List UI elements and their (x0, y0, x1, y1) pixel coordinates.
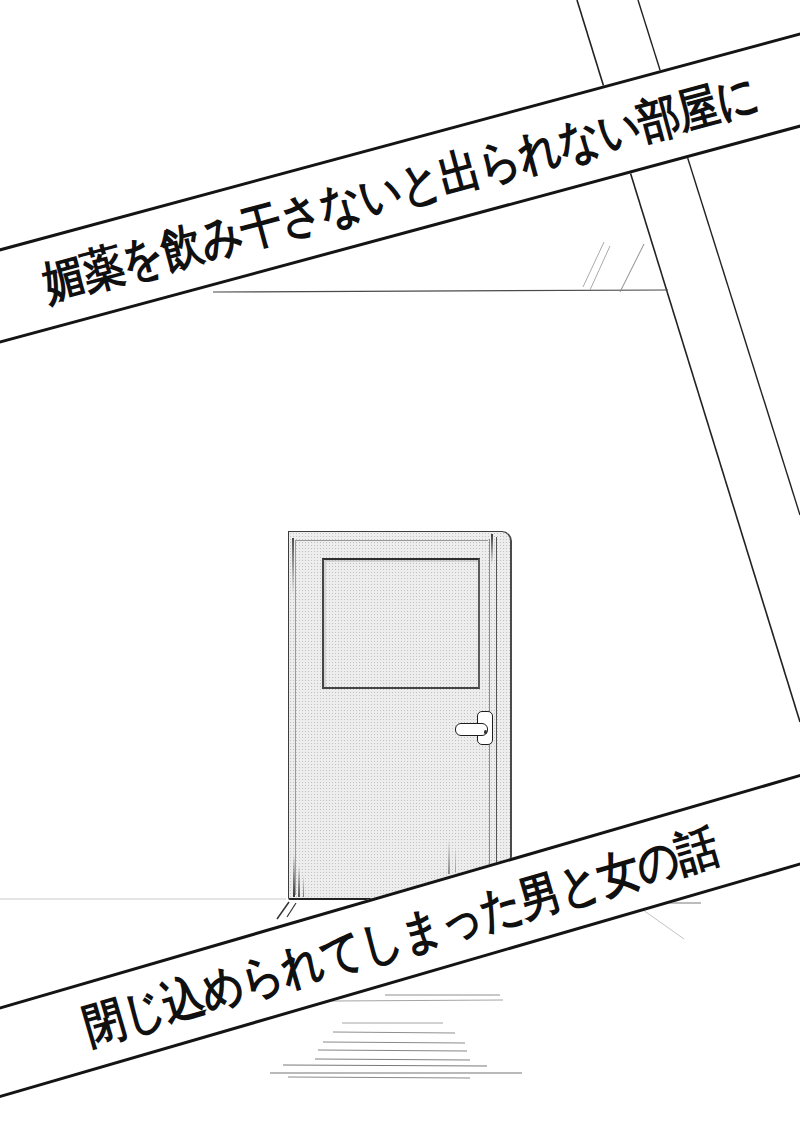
keyhole-icon (484, 730, 487, 734)
door-edge-line (496, 537, 498, 898)
hatch-stroke (620, 244, 644, 292)
shading-streak (448, 840, 450, 874)
hatch-stroke (583, 242, 604, 287)
door-foot-mark (287, 903, 296, 917)
door-illustration (288, 531, 512, 900)
shading-streak (293, 855, 295, 897)
manga-title-page: 媚薬を飲み干さないと出られない部屋に 閉じ込められてしまった男と女の話 (0, 0, 800, 1135)
hatch-stroke (590, 246, 610, 290)
shading-streak (303, 875, 304, 897)
door-panel-top-line (295, 540, 488, 541)
door-panel-left-line (295, 540, 296, 895)
door-handle-lever (455, 723, 488, 736)
shading-streak (491, 534, 493, 564)
door-window (322, 558, 480, 689)
shading-streak (455, 846, 456, 872)
wall-line (213, 290, 668, 292)
shading-streak (292, 538, 294, 594)
shading-streak (298, 866, 300, 897)
